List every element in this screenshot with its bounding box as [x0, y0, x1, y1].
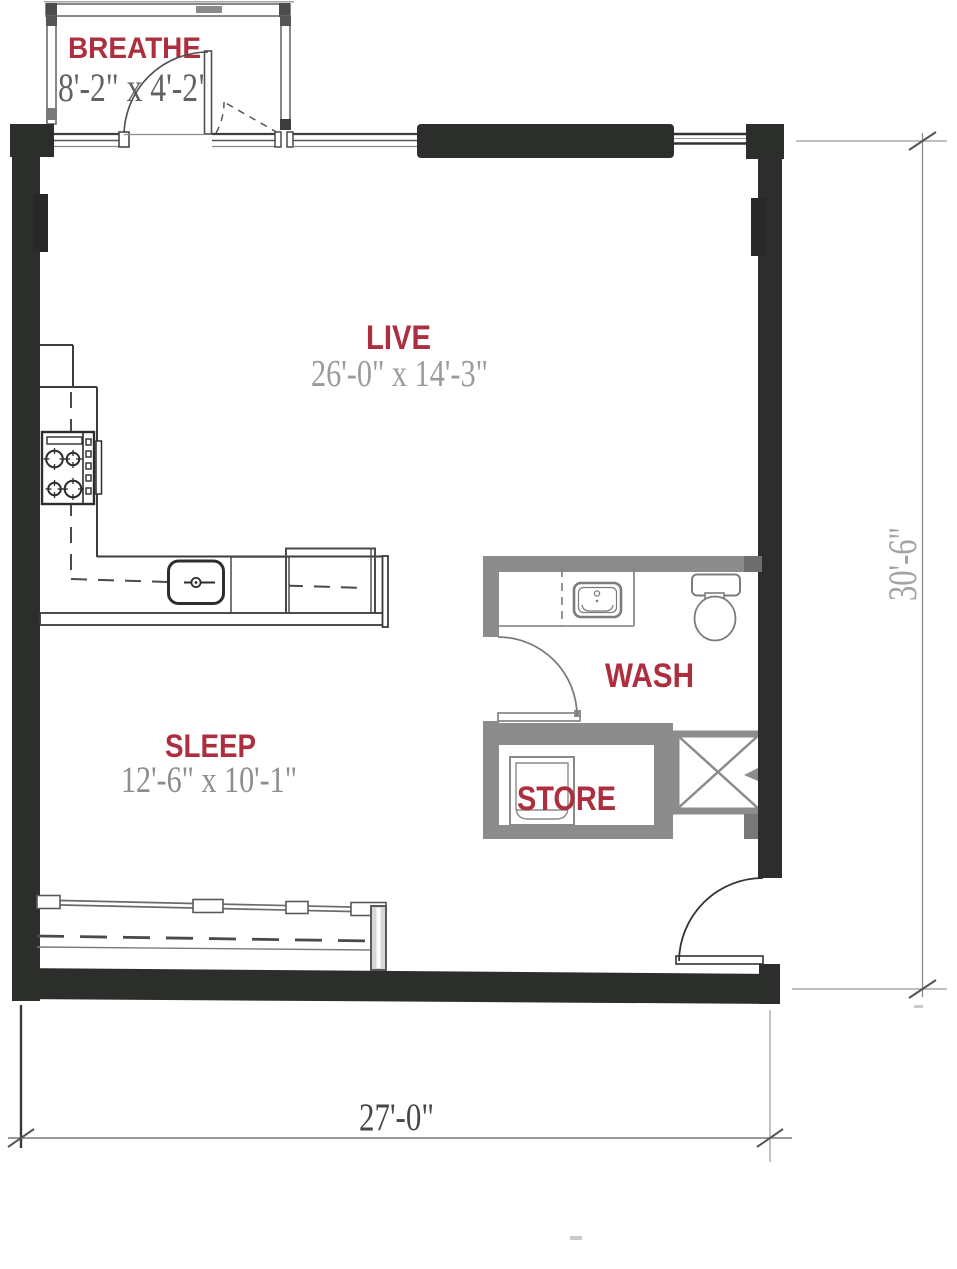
svg-text:26'-0" x 14'-3": 26'-0" x 14'-3": [311, 353, 488, 395]
svg-text:30'-6": 30'-6": [880, 527, 925, 601]
svg-text:SLEEP: SLEEP: [165, 728, 256, 764]
svg-text:27'-0": 27'-0": [359, 1096, 434, 1139]
svg-text:8'-2" x 4'-2": 8'-2" x 4'-2": [58, 65, 211, 110]
svg-text:STORE: STORE: [517, 780, 616, 818]
svg-text:LIVE: LIVE: [366, 319, 431, 357]
svg-text:WASH: WASH: [605, 657, 694, 695]
svg-text:12'-6" x 10'-1": 12'-6" x 10'-1": [121, 760, 297, 801]
svg-text:BREATHE: BREATHE: [68, 32, 201, 65]
